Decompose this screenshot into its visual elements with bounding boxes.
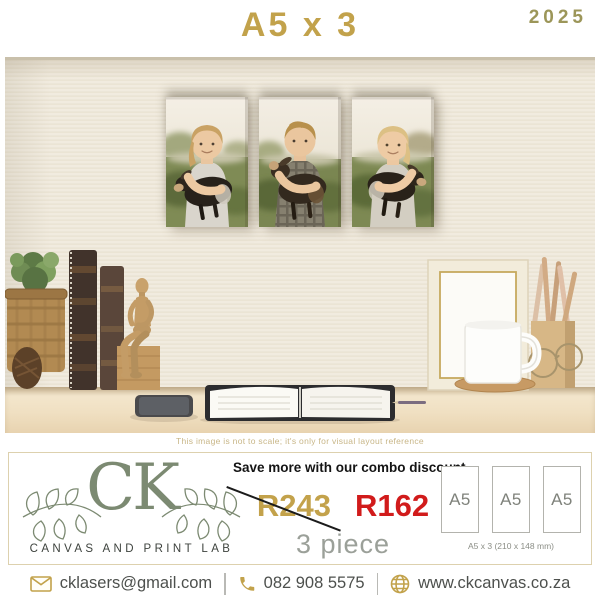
offer-panel: CK CANVAS AND PRINT LAB Save more with o… — [8, 452, 592, 565]
desk-decor-center — [130, 379, 430, 429]
contact-divider — [377, 573, 379, 595]
old-price: R243 — [257, 488, 331, 524]
contact-phone[interactable]: 082 908 5575 — [238, 574, 365, 593]
product-photo — [5, 57, 595, 433]
canvas-print-3 — [352, 97, 434, 227]
size-caption: A5 x 3 (210 x 148 mm) — [441, 541, 581, 551]
combo-offer: Save more with our combo discount R243 R… — [233, 460, 453, 560]
contact-email[interactable]: cklasers@gmail.com — [30, 574, 212, 593]
phone-icon — [238, 575, 256, 593]
canvas-print-1 — [166, 97, 248, 227]
promo-flyer: A5 x 3 2025 — [0, 0, 600, 600]
brand-logo: CK CANVAS AND PRINT LAB — [19, 455, 244, 561]
canvas-print-row — [166, 97, 434, 227]
laurel-leaf-right-icon — [160, 487, 244, 543]
scale-disclaimer: This image is not to scale; it's only fo… — [0, 436, 600, 446]
globe-icon — [390, 574, 410, 594]
desk-decor-left — [5, 242, 160, 397]
contact-email-text: cklasers@gmail.com — [60, 574, 212, 593]
new-price: R162 — [355, 488, 429, 524]
contact-website[interactable]: www.ckcanvas.co.za — [390, 574, 570, 594]
size-box: A5 — [441, 466, 479, 533]
page-title: A5 x 3 — [0, 6, 600, 45]
size-box-row: A5 A5 A5 — [441, 466, 591, 533]
contact-bar: cklasers@gmail.com 082 908 5575 www.ckca… — [0, 567, 600, 600]
contact-website-text: www.ckcanvas.co.za — [418, 574, 570, 593]
year-badge: 2025 — [529, 7, 587, 29]
contact-phone-text: 082 908 5575 — [264, 574, 365, 593]
contact-divider — [224, 573, 226, 595]
size-box: A5 — [543, 466, 581, 533]
desk-decor-right — [423, 255, 583, 400]
logo-tagline: CANVAS AND PRINT LAB — [19, 543, 244, 555]
quantity-label: 3 piece — [233, 529, 453, 560]
envelope-icon — [30, 576, 52, 592]
size-diagram: A5 A5 A5 A5 x 3 (210 x 148 mm) — [441, 466, 591, 551]
offer-headline: Save more with our combo discount — [233, 460, 453, 475]
price-row: R243 R162 — [233, 488, 453, 524]
size-box: A5 — [492, 466, 530, 533]
canvas-print-2 — [259, 97, 341, 227]
